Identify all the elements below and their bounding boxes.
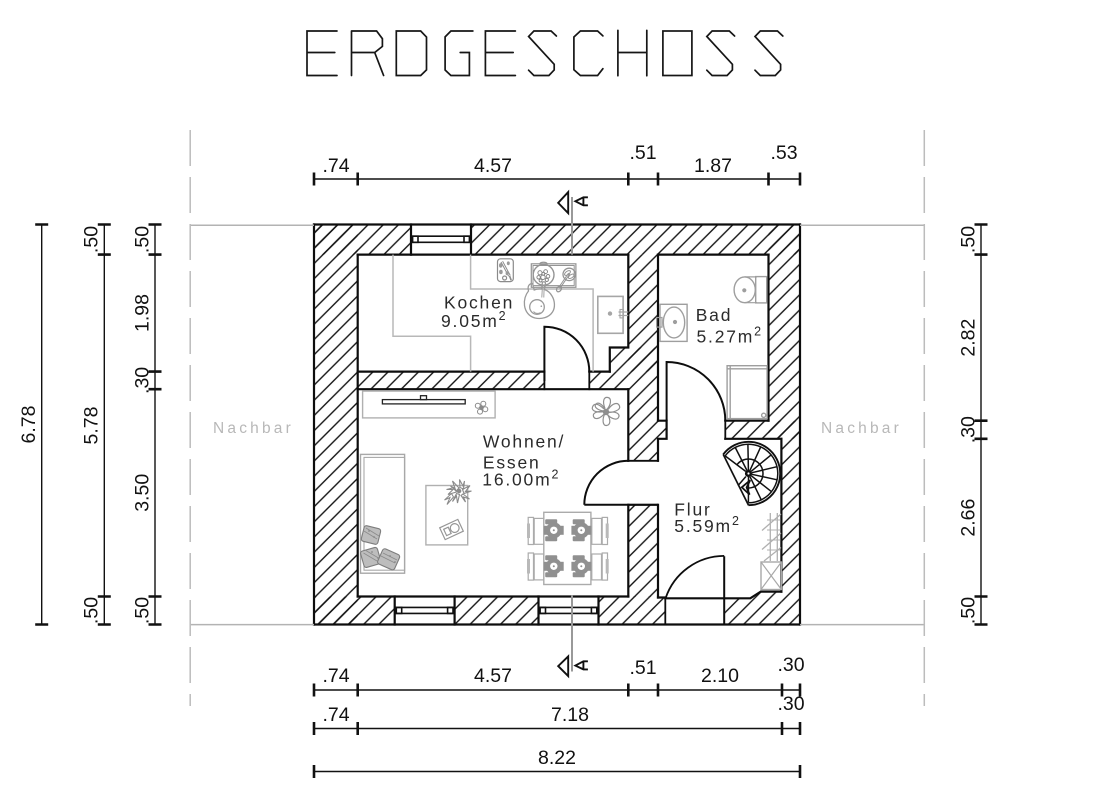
svg-text:4.57: 4.57 <box>474 155 512 177</box>
svg-text:1.98: 1.98 <box>132 294 154 332</box>
svg-text:.50: .50 <box>958 597 980 624</box>
svg-text:6.78: 6.78 <box>18 406 40 444</box>
svg-text:3.50: 3.50 <box>132 474 154 512</box>
svg-text:.51: .51 <box>629 657 656 679</box>
svg-text:Nachbar: Nachbar <box>821 420 902 437</box>
svg-text:7.18: 7.18 <box>551 704 589 726</box>
svg-text:2.66: 2.66 <box>958 499 980 537</box>
svg-text:.50: .50 <box>81 226 103 253</box>
svg-text:.50: .50 <box>132 597 154 624</box>
svg-text:2.10: 2.10 <box>701 665 739 687</box>
svg-text:Nachbar: Nachbar <box>213 420 294 437</box>
svg-text:5.78: 5.78 <box>81 407 103 445</box>
svg-text:5.27m2: 5.27m2 <box>697 325 763 347</box>
svg-text:16.00m2: 16.00m2 <box>482 468 560 490</box>
svg-text:.51: .51 <box>629 142 656 164</box>
svg-text:.30: .30 <box>132 367 154 394</box>
svg-text:.30: .30 <box>777 693 804 715</box>
svg-text:.50: .50 <box>958 226 980 253</box>
svg-text:4.57: 4.57 <box>474 665 512 687</box>
svg-text:2.82: 2.82 <box>958 319 980 357</box>
svg-text:Wohnen/: Wohnen/ <box>483 431 565 451</box>
svg-text:1.87: 1.87 <box>694 155 732 177</box>
svg-text:8.22: 8.22 <box>538 747 576 769</box>
svg-text:.74: .74 <box>322 704 349 726</box>
svg-text:.53: .53 <box>770 142 797 164</box>
svg-text:5.59m2: 5.59m2 <box>674 514 740 536</box>
svg-text:.74: .74 <box>322 155 349 177</box>
svg-text:.30: .30 <box>958 416 980 443</box>
svg-text:.50: .50 <box>81 597 103 624</box>
svg-text:.74: .74 <box>322 665 349 687</box>
svg-text:.50: .50 <box>132 226 154 253</box>
svg-text:9.05m2: 9.05m2 <box>441 309 507 331</box>
svg-text:.30: .30 <box>777 654 804 676</box>
svg-text:Bad: Bad <box>696 305 733 325</box>
